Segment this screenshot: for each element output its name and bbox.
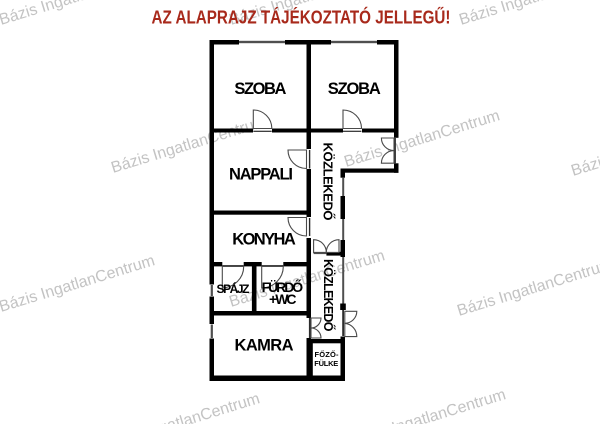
svg-text:KÖZLEKEDŐ: KÖZLEKEDŐ bbox=[321, 259, 336, 332]
svg-text:+WC: +WC bbox=[269, 291, 297, 307]
svg-text:AZ ALAPRAJZ TÁJÉKOZTATÓ JELLEG: AZ ALAPRAJZ TÁJÉKOZTATÓ JELLEGŰ! bbox=[152, 6, 451, 27]
svg-text:FÜLKE: FÜLKE bbox=[314, 359, 338, 368]
svg-text:SPÁJZ: SPÁJZ bbox=[217, 281, 250, 296]
svg-text:NAPPALI: NAPPALI bbox=[229, 165, 293, 183]
svg-text:KONYHA: KONYHA bbox=[232, 231, 296, 249]
svg-text:SZOBA: SZOBA bbox=[234, 80, 286, 98]
svg-text:KAMRA: KAMRA bbox=[235, 336, 294, 354]
svg-text:FŐZŐ-: FŐZŐ- bbox=[315, 350, 340, 359]
svg-text:SZOBA: SZOBA bbox=[328, 80, 381, 98]
svg-text:KÖZLEKEDŐ: KÖZLEKEDŐ bbox=[321, 143, 336, 221]
